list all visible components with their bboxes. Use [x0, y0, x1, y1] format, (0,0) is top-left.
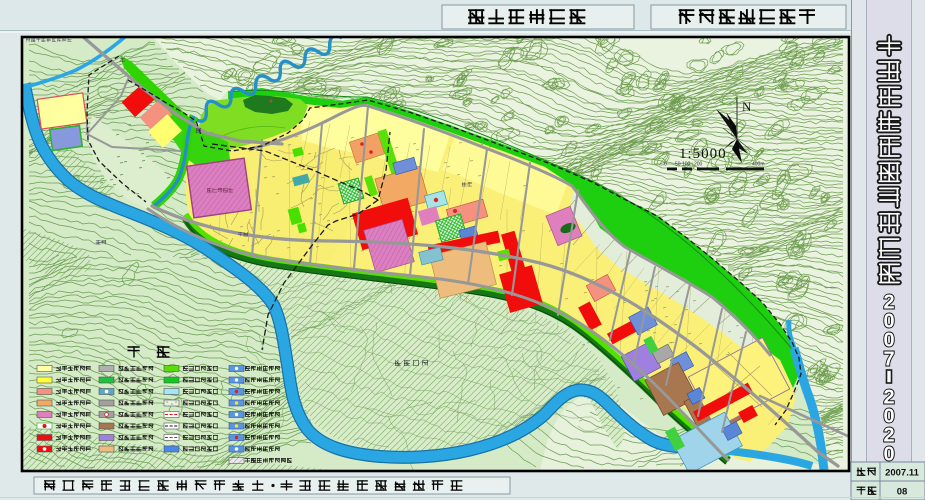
svg-text:08: 08	[897, 487, 908, 498]
svg-text:1:5000: 1:5000	[679, 146, 727, 162]
svg-text:50 100: 50 100	[675, 162, 691, 168]
svg-text:400m: 400m	[752, 162, 765, 168]
svg-text:7: 7	[883, 349, 894, 371]
svg-text:200: 200	[694, 162, 703, 168]
svg-text:0: 0	[664, 162, 667, 168]
svg-text:N: N	[742, 99, 752, 114]
svg-text:2007.11: 2007.11	[885, 468, 920, 479]
